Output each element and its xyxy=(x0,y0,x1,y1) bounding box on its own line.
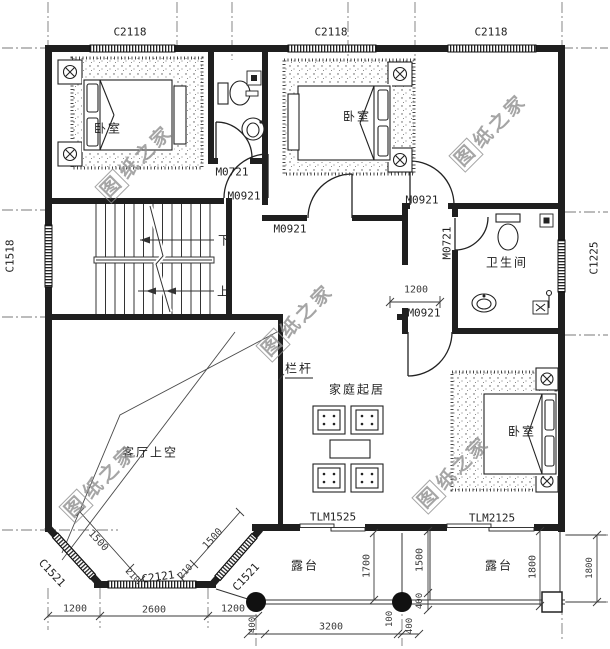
dim-terrace-outer-1800: 1800 xyxy=(585,557,595,579)
dim-bottom-3200: 3200 xyxy=(319,622,343,633)
dim-bottom-1200-left: 1200 xyxy=(63,604,87,615)
room-label-bedroom3: 卧室 xyxy=(508,423,536,440)
room-label-terrace-left: 露台 xyxy=(291,557,319,574)
door-label-m0721-small-bath: M0721 xyxy=(215,166,248,179)
dim-terrace-1800: 1800 xyxy=(528,555,539,579)
dim-bottom-1200-right: 1200 xyxy=(221,604,245,615)
room-label-family-room: 家庭起居 xyxy=(329,381,385,398)
window-label-c2118-1: C2118 xyxy=(113,26,146,39)
railing-label: 栏杆 xyxy=(285,360,313,379)
dim-terrace-400: 400 xyxy=(415,593,425,609)
window-label-c1518: C1518 xyxy=(4,239,17,272)
door-label-tlm2125: TLM2125 xyxy=(469,512,515,525)
dim-bottom-400-b: 400 xyxy=(405,618,415,634)
room-label-bedroom2: 卧室 xyxy=(343,108,371,125)
door-label-m0921-bedroom1: M0921 xyxy=(227,190,260,203)
door-label-m0921-bedroom3: M0921 xyxy=(407,307,440,320)
staircase xyxy=(94,204,214,314)
floor-plan: C2118 C2118 C2118 C1518 C1225 C1521 C212… xyxy=(0,0,610,649)
door-label-m0721-main-bath: M0721 xyxy=(441,226,454,259)
window-label-c1225: C1225 xyxy=(588,241,601,274)
structural-columns xyxy=(246,592,562,612)
dim-bottom-400-a: 400 xyxy=(248,617,258,633)
window-label-c2118-3: C2118 xyxy=(474,26,507,39)
dim-terrace-1700: 1700 xyxy=(362,554,373,578)
dim-terrace-1500: 1500 xyxy=(415,548,426,572)
room-label-bathroom: 卫生间 xyxy=(486,254,528,271)
door-label-m0921-bedroom2: M0921 xyxy=(273,223,306,236)
dim-corridor-1200: 1200 xyxy=(404,285,428,296)
window-label-c2118-2: C2118 xyxy=(314,26,347,39)
small-bathroom-fixtures xyxy=(218,71,264,140)
room-label-bedroom1: 卧室 xyxy=(94,120,122,137)
stair-up-label: 上 xyxy=(217,283,231,300)
dim-bottom-100: 100 xyxy=(385,611,395,627)
door-label-m0921-room3: M0921 xyxy=(405,194,438,207)
dim-bottom-2600: 2600 xyxy=(142,605,166,616)
family-room-furniture xyxy=(313,406,383,492)
room-label-terrace-right: 露台 xyxy=(485,557,513,574)
door-label-tlm1525: TLM1525 xyxy=(310,511,356,524)
stair-down-label: 下 xyxy=(218,232,232,249)
